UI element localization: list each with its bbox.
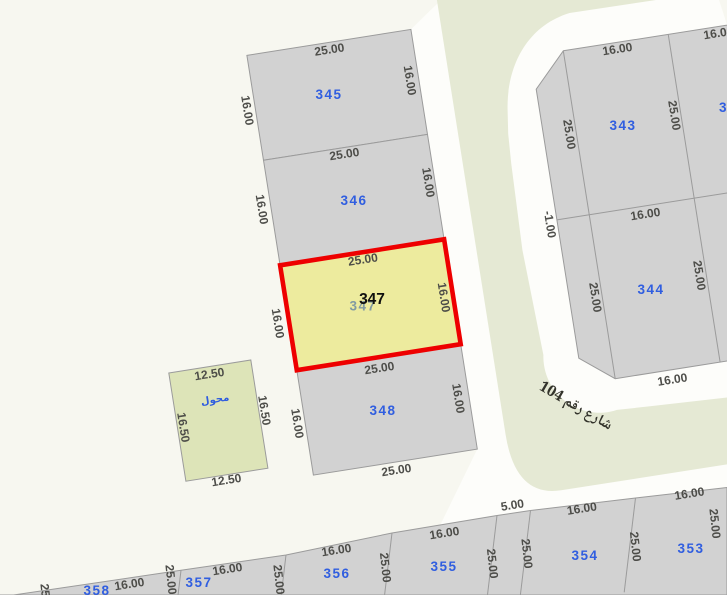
svg-text:25.00: 25.00 [37, 583, 54, 595]
svg-text:354: 354 [571, 548, 598, 563]
svg-text:345: 345 [315, 87, 342, 102]
svg-text:348: 348 [369, 403, 396, 418]
svg-text:353: 353 [677, 541, 704, 556]
svg-text:34: 34 [719, 100, 727, 115]
svg-text:344: 344 [637, 282, 664, 297]
svg-text:355: 355 [430, 559, 457, 574]
svg-text:343: 343 [609, 118, 636, 133]
svg-text:347: 347 [359, 291, 385, 308]
svg-text:356: 356 [323, 566, 350, 581]
svg-text:358: 358 [83, 583, 110, 595]
svg-text:357: 357 [185, 575, 212, 590]
svg-text:346: 346 [340, 193, 367, 208]
